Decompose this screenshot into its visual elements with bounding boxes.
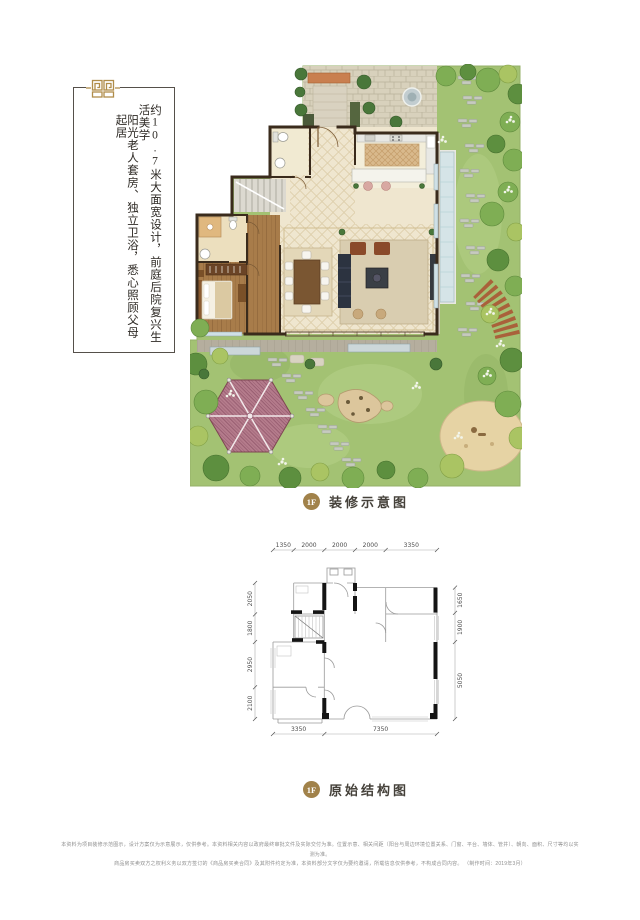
elder-bathroom [197, 215, 247, 262]
chinese-fret-ornament-icon [86, 77, 120, 99]
house-footprint [197, 127, 440, 336]
dimension-label: 2000 [363, 542, 378, 549]
stairs [234, 179, 286, 212]
dimension-label: 7350 [373, 726, 388, 733]
kitchen [352, 133, 437, 191]
disclaimer-line-1: 本资料为项目装修示范图示，设计方案仅为示意展示，仅供参考。本资料相关内容以政府最… [60, 841, 580, 860]
front-courtyard [295, 66, 437, 131]
structural-floor-plan: 1350 2000 2000 2000 3350 2050 1800 2950 … [230, 538, 480, 750]
dimension-label: 2100 [247, 695, 254, 710]
brochure-page: { "intro": { "line1": "约10.7米大面宽设计，前庭后院复… [0, 0, 640, 920]
powder-bathroom [272, 129, 308, 175]
bearing-walls [291, 583, 438, 719]
dimension-label: 2000 [332, 542, 347, 549]
water-feature [438, 150, 456, 304]
disclaimer-line-2: 商品房买卖双方之权利义务以双方签订的《商品房买卖合同》及其附件约定为准，本资料部… [60, 860, 580, 870]
structural-plan-caption-label: 原始结构图 [329, 780, 409, 799]
living-dining-room [280, 224, 437, 334]
floor-badge-1f: 1F [303, 493, 320, 510]
corridor-floor [247, 215, 280, 334]
decorated-floor-plan-illustration [190, 64, 522, 488]
dimension-label: 1800 [247, 620, 254, 635]
structural-plan-caption: 1F 原始结构图 [190, 780, 522, 799]
dimension-label: 3350 [291, 726, 306, 733]
footer-disclaimer: 本资料为项目装修示范图示，设计方案仅为示意展示，仅供参考。本资料相关内容以政府最… [60, 841, 580, 870]
structure-walls [271, 568, 439, 723]
intro-text-line-1: 约10.7米大面宽设计，前庭后院复兴生活美学 [137, 104, 160, 344]
dimension-lines: 1350 2000 2000 2000 3350 2050 1800 2950 … [247, 542, 464, 736]
intro-panel: 约10.7米大面宽设计，前庭后院复兴生活美学 阳光老人套房、独立卫浴，悉心照顾父… [73, 87, 175, 353]
intro-text: 约10.7米大面宽设计，前庭后院复兴生活美学 阳光老人套房、独立卫浴，悉心照顾父… [82, 104, 160, 344]
decorated-plan-caption-label: 装修示意图 [329, 492, 409, 511]
floor-badge-1f: 1F [303, 781, 320, 798]
dimension-label: 5050 [457, 673, 464, 688]
dimension-label: 1350 [276, 542, 291, 549]
dimension-label: 2050 [247, 591, 254, 606]
decorated-plan-caption: 1F 装修示意图 [190, 492, 522, 511]
dimension-label: 1900 [457, 620, 464, 635]
dimension-label: 3350 [404, 542, 419, 549]
dimension-label: 2950 [247, 657, 254, 672]
dimension-label: 1650 [457, 592, 464, 607]
dimension-label: 2000 [301, 542, 316, 549]
intro-text-line-2: 阳光老人套房、独立卫浴，悉心照顾父母起居 [114, 104, 137, 344]
